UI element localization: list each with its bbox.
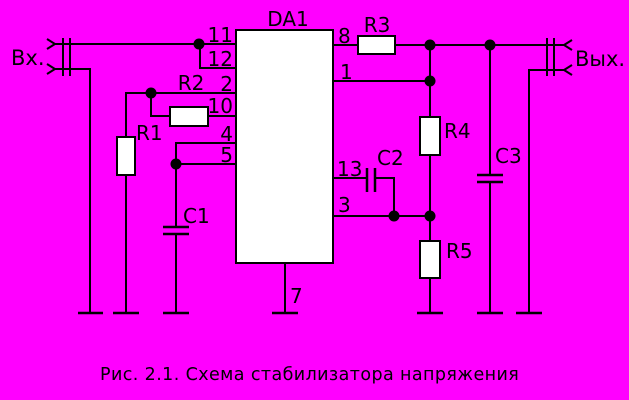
junction-dot [425, 211, 436, 222]
input-label: Вх. [11, 46, 45, 70]
pin-label-12: 12 [208, 47, 233, 71]
ic-body [236, 30, 333, 263]
resistor-r3: R3 [358, 13, 395, 54]
pin-label-13: 13 [337, 157, 362, 181]
schematic-page: DA1 11 12 2 10 4 5 8 1 13 3 7 R1 R2 [0, 0, 629, 400]
output-label: Вых. [575, 47, 625, 71]
junction-dot [425, 76, 436, 87]
resistor-r1-body [117, 137, 135, 175]
pin-label-1: 1 [340, 60, 353, 84]
pin-label-7: 7 [290, 284, 303, 308]
resistor-r2-label: R2 [178, 71, 205, 95]
figure-caption: Рис. 2.1. Схема стабилизатора напряжения [100, 365, 519, 385]
ic-da1: DA1 [236, 7, 333, 263]
capacitor-c1-label: C1 [183, 204, 210, 228]
resistor-r5-label: R5 [446, 239, 473, 263]
capacitor-c3-label: C3 [495, 144, 522, 168]
resistor-r3-label: R3 [364, 13, 391, 37]
pin-label-5: 5 [220, 143, 233, 167]
junction-dot [485, 40, 496, 51]
resistor-r5-body [420, 241, 440, 278]
junction-dot [171, 159, 182, 170]
resistor-r4-body [420, 117, 440, 155]
ic-designator: DA1 [267, 7, 308, 31]
resistor-r2-body [170, 107, 208, 126]
resistor-r3-body [358, 36, 395, 54]
pin-label-3: 3 [338, 193, 351, 217]
pin-label-10: 10 [208, 94, 233, 118]
resistor-r4-label: R4 [444, 119, 471, 143]
junction-dot [389, 211, 400, 222]
junction-dot [146, 88, 157, 99]
junction-dot [194, 39, 205, 50]
capacitor-c2-label: C2 [377, 146, 404, 170]
junction-dot [425, 40, 436, 51]
pin-label-8: 8 [338, 24, 351, 48]
pin-label-11: 11 [208, 23, 233, 47]
pin-label-2: 2 [220, 72, 233, 96]
resistor-r1-label: R1 [136, 121, 163, 145]
schematic-canvas: DA1 11 12 2 10 4 5 8 1 13 3 7 R1 R2 [0, 0, 629, 400]
